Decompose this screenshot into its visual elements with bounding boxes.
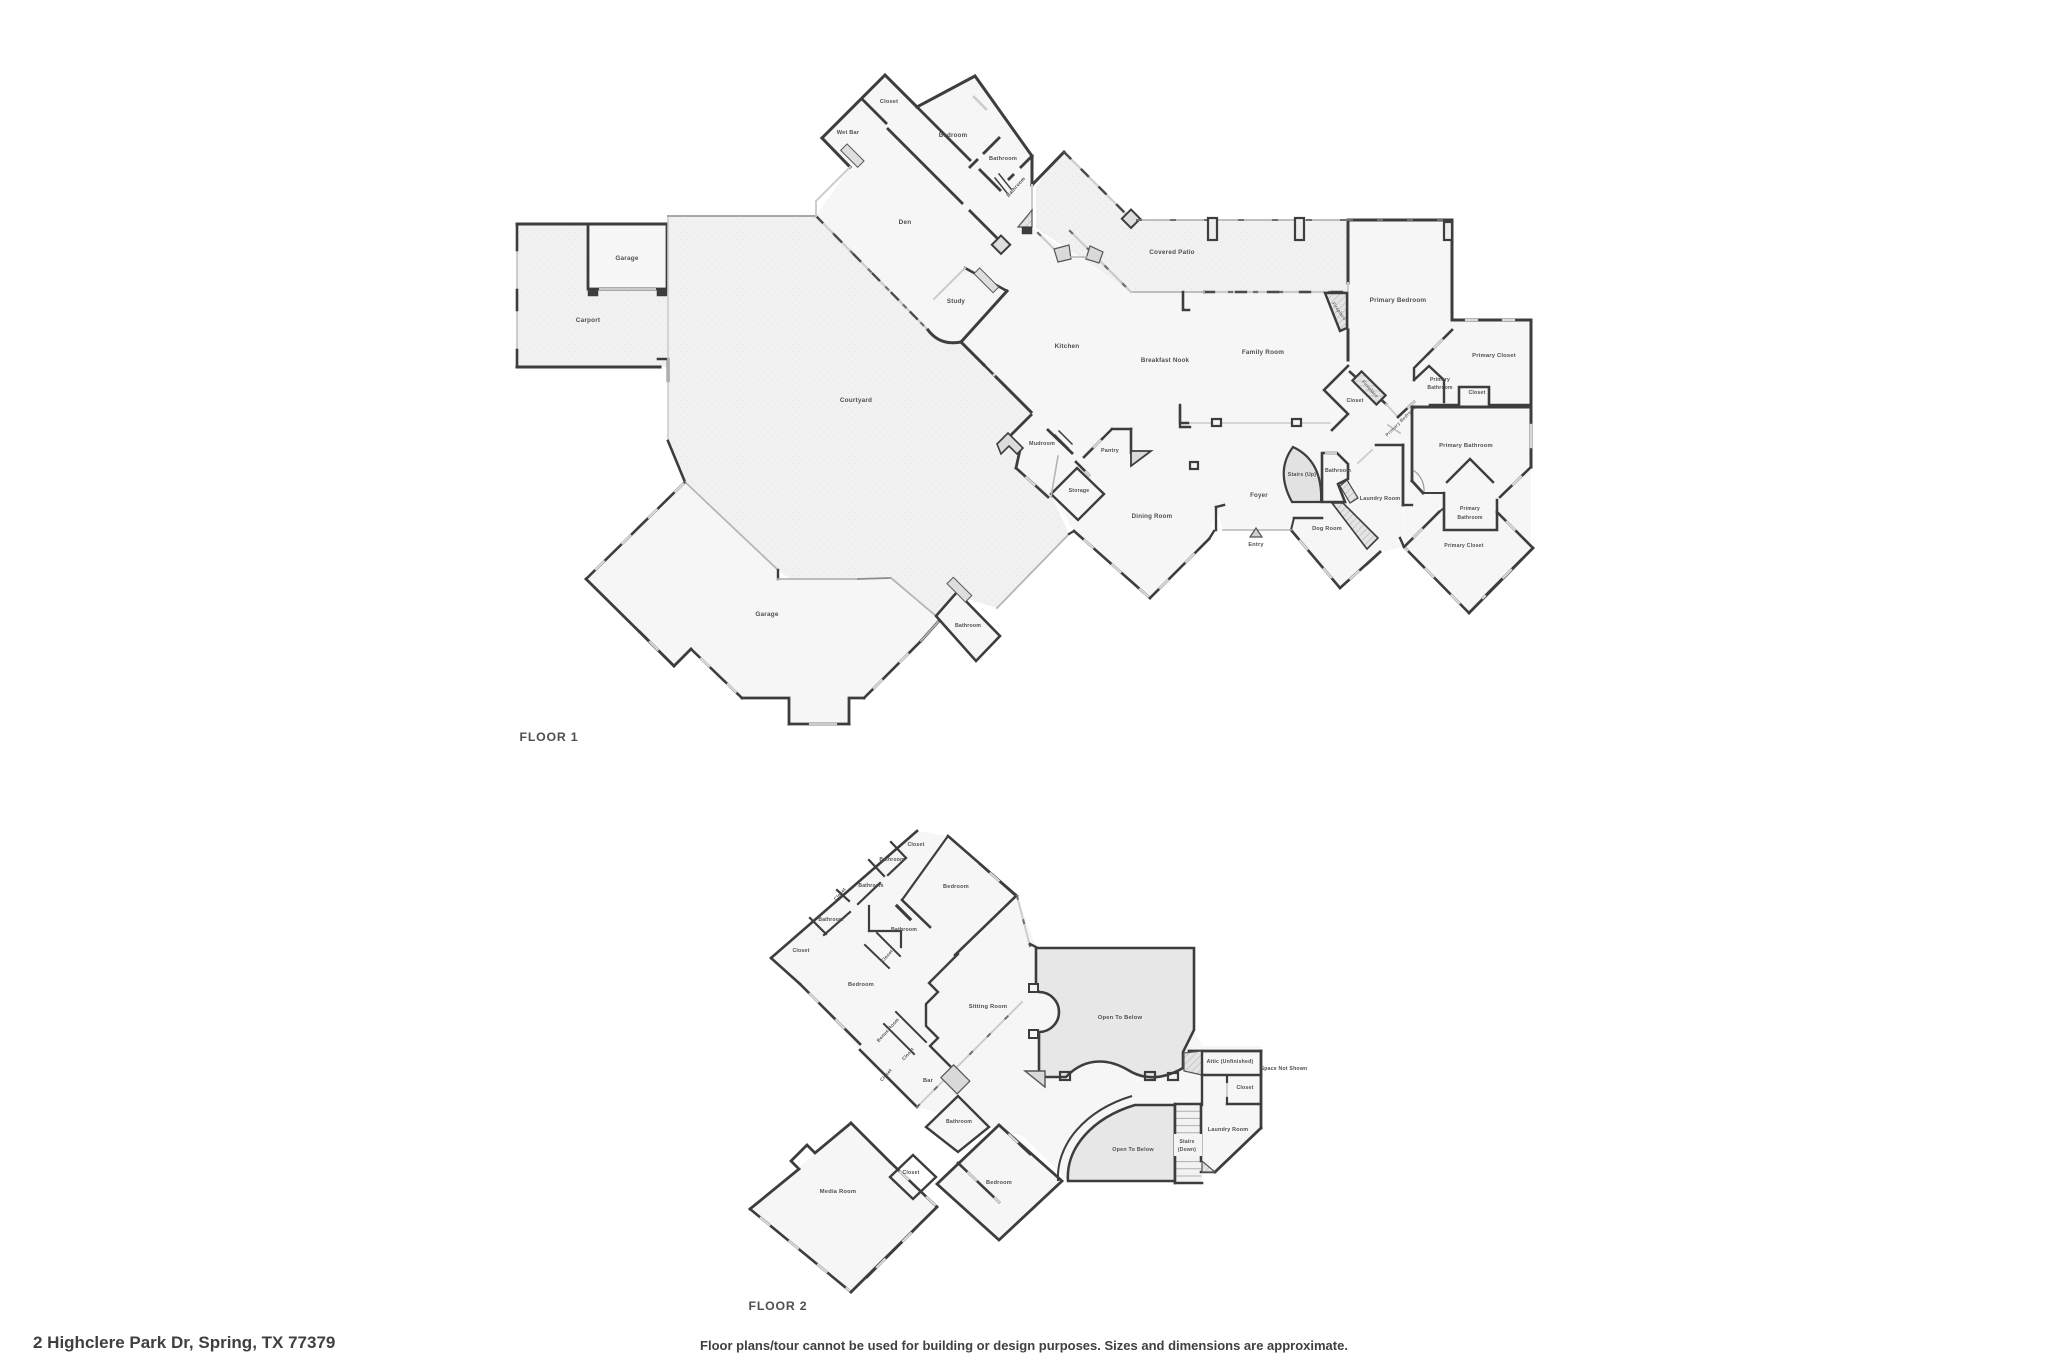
svg-text:Bathroom: Bathroom: [1427, 385, 1453, 391]
svg-text:Laundry Room: Laundry Room: [1208, 1127, 1248, 1133]
svg-text:Carport: Carport: [576, 317, 601, 324]
svg-text:Laundry Room: Laundry Room: [1360, 496, 1400, 502]
svg-text:Covered Patio: Covered Patio: [1149, 249, 1195, 256]
svg-text:Wet Bar: Wet Bar: [837, 130, 860, 136]
svg-text:Garage: Garage: [755, 611, 778, 618]
svg-text:Study: Study: [947, 298, 966, 305]
svg-text:Space Not Shown: Space Not Shown: [1261, 1066, 1308, 1072]
svg-text:Stairs: Stairs: [1179, 1139, 1194, 1145]
svg-text:Bathroom: Bathroom: [1325, 468, 1351, 474]
svg-text:Closet: Closet: [880, 99, 898, 105]
svg-text:Foyer: Foyer: [1250, 492, 1268, 499]
svg-text:Primary Bedroom: Primary Bedroom: [1370, 297, 1427, 304]
svg-text:Den: Den: [899, 219, 912, 226]
svg-text:Bathroom: Bathroom: [818, 917, 844, 923]
svg-text:Bathroom: Bathroom: [858, 883, 884, 889]
svg-text:Kitchen: Kitchen: [1055, 343, 1080, 350]
svg-text:Primary: Primary: [1460, 506, 1480, 512]
svg-text:Bathroom: Bathroom: [989, 156, 1017, 162]
svg-text:Bar: Bar: [923, 1078, 934, 1084]
svg-text:Media Room: Media Room: [820, 1189, 856, 1195]
svg-text:Bathroom: Bathroom: [879, 857, 905, 863]
svg-text:Floor plans/tour cannot be use: Floor plans/tour cannot be used for buil…: [700, 1338, 1348, 1353]
svg-text:Primary Closet: Primary Closet: [1472, 353, 1516, 359]
svg-text:Dog Room: Dog Room: [1312, 526, 1342, 532]
svg-text:Bedroom: Bedroom: [943, 884, 969, 890]
svg-text:Mudroom: Mudroom: [1029, 441, 1055, 447]
svg-text:Closet: Closet: [792, 948, 809, 954]
svg-text:Pantry: Pantry: [1101, 448, 1119, 454]
svg-text:Bathroom: Bathroom: [1457, 515, 1483, 521]
svg-text:Family Room: Family Room: [1242, 349, 1284, 356]
svg-text:FLOOR 2: FLOOR 2: [749, 1299, 808, 1313]
svg-text:Dining Room: Dining Room: [1132, 513, 1173, 520]
svg-text:Stairs (Up): Stairs (Up): [1288, 472, 1317, 478]
svg-text:Closet: Closet: [907, 842, 924, 848]
svg-text:FLOOR 1: FLOOR 1: [520, 730, 579, 744]
svg-text:Bedroom: Bedroom: [986, 1180, 1012, 1186]
svg-text:Garage: Garage: [615, 255, 638, 262]
svg-text:Storage: Storage: [1069, 488, 1090, 494]
svg-text:2 Highclere Park Dr, Spring, T: 2 Highclere Park Dr, Spring, TX 77379: [33, 1333, 335, 1352]
svg-text:Primary: Primary: [1430, 377, 1450, 383]
svg-text:Bedroom: Bedroom: [939, 132, 968, 139]
svg-text:Bathroom: Bathroom: [955, 623, 981, 629]
svg-text:Primary Closet: Primary Closet: [1444, 543, 1483, 549]
svg-text:Breakfast Nook: Breakfast Nook: [1141, 357, 1190, 364]
svg-text:Bedroom: Bedroom: [848, 982, 874, 988]
svg-text:Closet: Closet: [1236, 1085, 1253, 1091]
svg-text:Attic (Unfinished): Attic (Unfinished): [1207, 1059, 1254, 1065]
svg-text:Bathroom: Bathroom: [946, 1119, 972, 1125]
svg-text:Primary Bathroom: Primary Bathroom: [1439, 443, 1493, 449]
svg-text:Entry: Entry: [1248, 542, 1264, 548]
svg-text:Closet: Closet: [1346, 398, 1363, 404]
svg-text:Open To Below: Open To Below: [1098, 1015, 1143, 1021]
svg-text:Open To Below: Open To Below: [1112, 1147, 1154, 1153]
svg-text:Closet: Closet: [902, 1170, 919, 1176]
svg-text:Bathroom: Bathroom: [891, 927, 917, 933]
svg-text:(Down): (Down): [1178, 1147, 1196, 1153]
svg-text:Sitting Room: Sitting Room: [969, 1004, 1007, 1010]
svg-text:Closet: Closet: [1468, 390, 1485, 396]
svg-text:Courtyard: Courtyard: [840, 397, 872, 404]
